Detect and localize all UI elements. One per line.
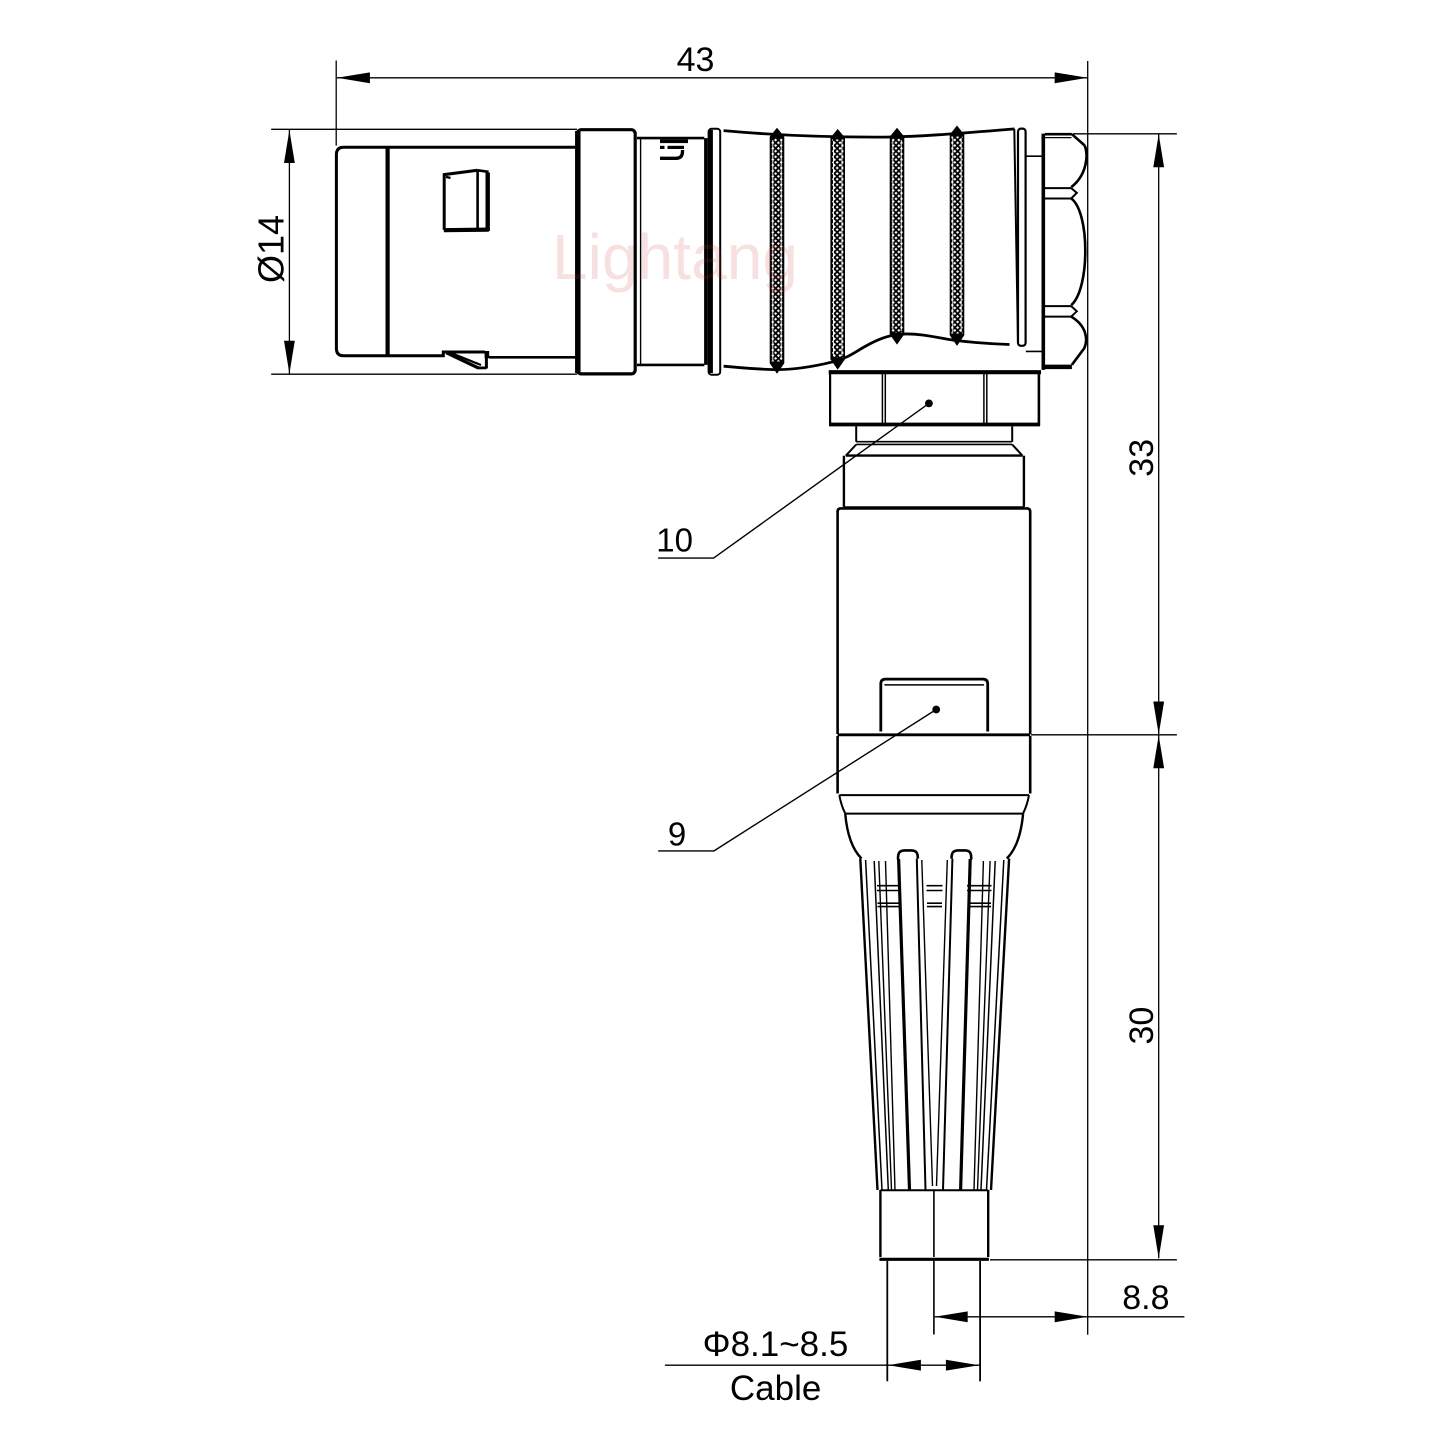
svg-text:Ø14: Ø14 (251, 215, 292, 283)
svg-text:33: 33 (1123, 439, 1161, 477)
svg-text:8.8: 8.8 (1122, 1279, 1169, 1317)
svg-text:43: 43 (677, 41, 715, 79)
svg-text:10: 10 (656, 522, 693, 559)
svg-text:Lightang: Lightang (552, 221, 798, 293)
svg-text:Φ8.1~8.5: Φ8.1~8.5 (703, 1325, 849, 1364)
svg-text:Cable: Cable (730, 1369, 821, 1408)
svg-text:30: 30 (1123, 1007, 1161, 1045)
svg-text:9: 9 (668, 815, 686, 852)
